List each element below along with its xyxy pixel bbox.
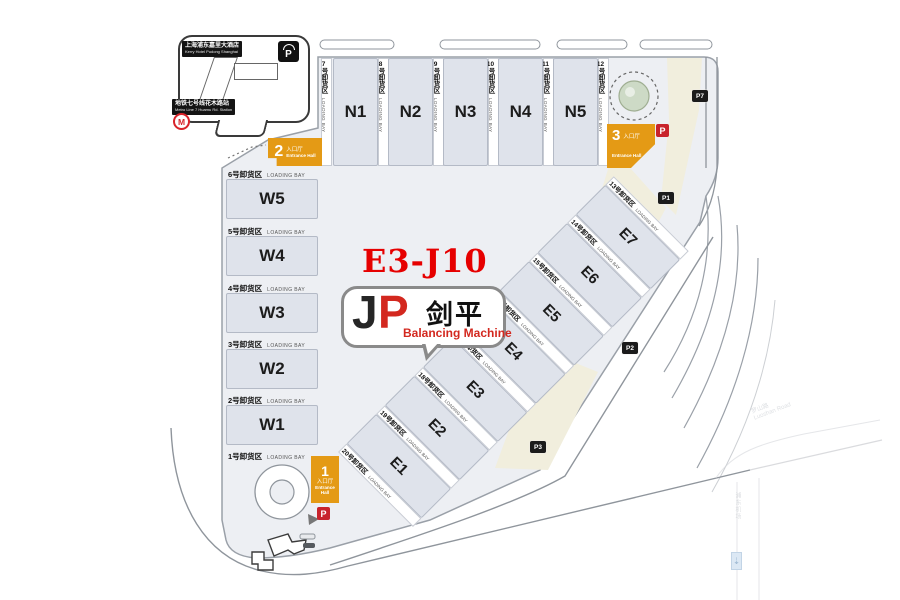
parking-badge-p2: P2	[622, 342, 638, 354]
logo-tagline: Balancing Machine	[403, 326, 512, 340]
roundabout-green-island	[619, 81, 649, 111]
hall-w4: W4	[226, 236, 318, 276]
expo-floorplan-map: 上海浦东嘉里大酒店 Kerry Hotel Pudong Shanghai P …	[0, 0, 900, 600]
hall-w1: W1	[226, 405, 318, 445]
road-label-airport: 浦东机场	[733, 492, 742, 520]
parking-badge-p3: P3	[530, 441, 546, 453]
hotel-label: 上海浦东嘉里大酒店 Kerry Hotel Pudong Shanghai	[182, 41, 242, 57]
entrance-hall-1: 1 入口厅 Entrance Hall	[311, 456, 339, 503]
hall-n2: N2	[388, 58, 433, 166]
airport-direction-arrow: ⇣	[731, 552, 742, 570]
exhibitor-logo: J P 剑平 Balancing Machine	[348, 291, 500, 343]
parking-icon-entrance3: P	[656, 124, 669, 137]
loading-bay-7: 7号卸货区LOADING BAY	[321, 58, 332, 166]
parking-icon-entrance1: P	[317, 507, 330, 520]
hall-n4: N4	[498, 58, 543, 166]
parking-badge-p1: P1	[658, 192, 674, 204]
exhibitor-logo-bubble: J P 剑平 Balancing Machine	[341, 286, 506, 348]
hall-w2: W2	[226, 349, 318, 389]
vehicle	[303, 543, 315, 548]
metro-logo-icon: M	[173, 113, 190, 130]
loading-bay-1: 1号卸货区LOADING BAY	[228, 451, 305, 462]
hall-w3: W3	[226, 293, 318, 333]
hotel-block: 上海浦东嘉里大酒店 Kerry Hotel Pudong Shanghai P …	[178, 35, 310, 123]
hall-n5: N5	[553, 58, 598, 166]
hall-n3: N3	[443, 58, 488, 166]
hall-n1: N1	[333, 58, 378, 166]
hotel-block-annex	[214, 120, 268, 137]
hotel-building	[234, 63, 278, 80]
logo-letter-j: J	[352, 285, 378, 339]
covered-parking-icon: P	[278, 41, 299, 62]
booth-code-label: E3-J10	[362, 242, 488, 280]
hall-w5: W5	[226, 179, 318, 219]
vehicle	[300, 534, 315, 539]
parking-badge-p7: P7	[692, 90, 708, 102]
